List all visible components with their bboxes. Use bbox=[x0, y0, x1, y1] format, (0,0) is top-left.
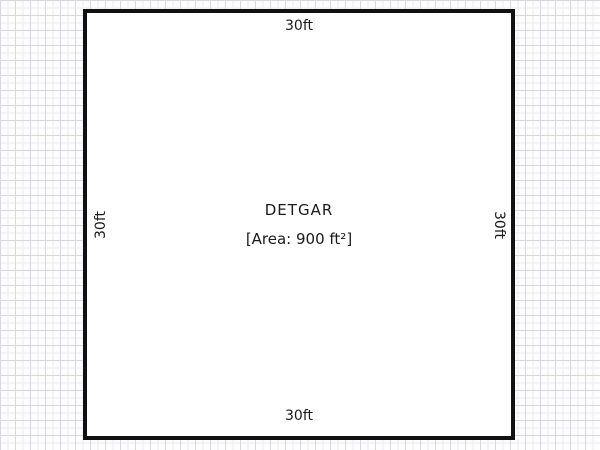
dimension-label-left: 30ft bbox=[93, 211, 109, 239]
room-area-label: [Area: 900 ft²] bbox=[246, 230, 352, 248]
dimension-label-right: 30ft bbox=[491, 211, 507, 239]
dimension-label-top: 30ft bbox=[285, 18, 313, 34]
floorplan-canvas[interactable]: 30ft 30ft 30ft 30ft DETGAR [Area: 900 ft… bbox=[0, 0, 600, 450]
room-label-group: DETGAR [Area: 900 ft²] bbox=[87, 13, 511, 436]
room-name: DETGAR bbox=[265, 201, 334, 219]
room-detgar[interactable]: 30ft 30ft 30ft 30ft DETGAR [Area: 900 ft… bbox=[83, 9, 515, 440]
dimension-label-bottom: 30ft bbox=[285, 408, 313, 424]
